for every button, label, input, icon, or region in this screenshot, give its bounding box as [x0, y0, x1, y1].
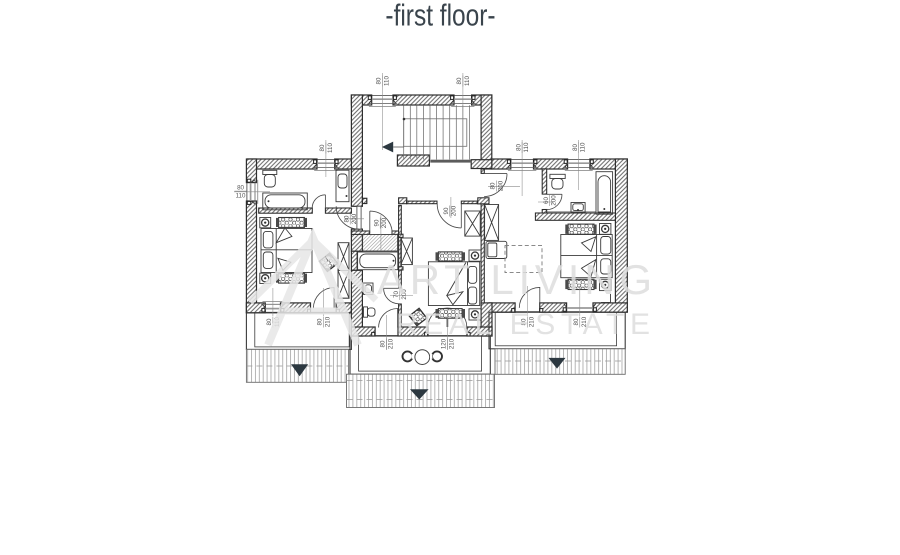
- svg-text:200: 200: [551, 195, 558, 206]
- svg-text:90: 90: [373, 219, 380, 226]
- svg-text:80: 80: [380, 340, 387, 347]
- svg-text:110: 110: [523, 142, 530, 152]
- svg-text:ART LIVING: ART LIVING: [377, 256, 656, 303]
- svg-text:200: 200: [451, 205, 458, 216]
- svg-text:110: 110: [327, 143, 334, 153]
- svg-text:200: 200: [351, 213, 358, 224]
- svg-text:80: 80: [237, 185, 244, 192]
- svg-text:110: 110: [236, 193, 246, 200]
- svg-text:80: 80: [343, 215, 350, 222]
- svg-text:80: 80: [456, 77, 463, 84]
- svg-text:80: 80: [266, 318, 273, 325]
- svg-text:200: 200: [381, 217, 388, 228]
- svg-text:80: 80: [490, 182, 497, 189]
- svg-text:210: 210: [388, 338, 395, 349]
- svg-text:210: 210: [325, 316, 332, 327]
- svg-text:80: 80: [515, 144, 522, 151]
- svg-text:-first floor-: -first floor-: [385, 0, 495, 32]
- svg-text:200: 200: [497, 180, 504, 191]
- svg-text:80: 80: [319, 144, 326, 151]
- svg-text:80: 80: [572, 144, 579, 151]
- svg-text:90: 90: [443, 207, 450, 214]
- svg-text:80: 80: [317, 318, 324, 325]
- svg-text:80: 80: [376, 77, 383, 84]
- svg-text:110: 110: [383, 76, 390, 86]
- svg-text:60: 60: [543, 197, 550, 204]
- svg-text:REAL ESTATE: REAL ESTATE: [396, 308, 654, 341]
- svg-text:110: 110: [464, 76, 471, 86]
- svg-text:110: 110: [580, 142, 587, 152]
